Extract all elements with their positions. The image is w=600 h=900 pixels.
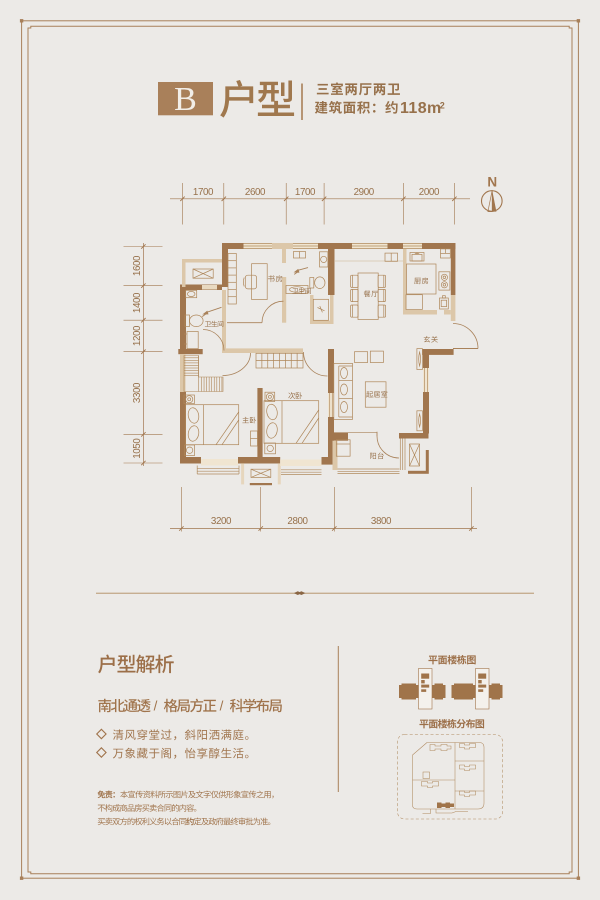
svg-text:1700: 1700 [193, 187, 214, 198]
svg-text:3800: 3800 [371, 516, 392, 527]
svg-text:2800: 2800 [287, 516, 308, 527]
svg-text:1050: 1050 [132, 438, 143, 459]
svg-text:N: N [487, 175, 497, 190]
svg-text:3200: 3200 [211, 516, 232, 527]
svg-text:3300: 3300 [132, 382, 143, 403]
svg-text:118m: 118m [400, 100, 442, 117]
svg-text:/: / [154, 699, 158, 714]
svg-text:B: B [174, 81, 197, 118]
svg-text:/: / [220, 699, 224, 714]
svg-text:2000: 2000 [419, 187, 440, 198]
svg-text:2900: 2900 [354, 187, 375, 198]
svg-text:1400: 1400 [132, 292, 143, 313]
svg-text:1200: 1200 [132, 325, 143, 346]
svg-text:2600: 2600 [245, 187, 266, 198]
svg-text:2: 2 [440, 100, 445, 110]
svg-text:1700: 1700 [295, 187, 316, 198]
svg-text:1600: 1600 [132, 255, 143, 276]
